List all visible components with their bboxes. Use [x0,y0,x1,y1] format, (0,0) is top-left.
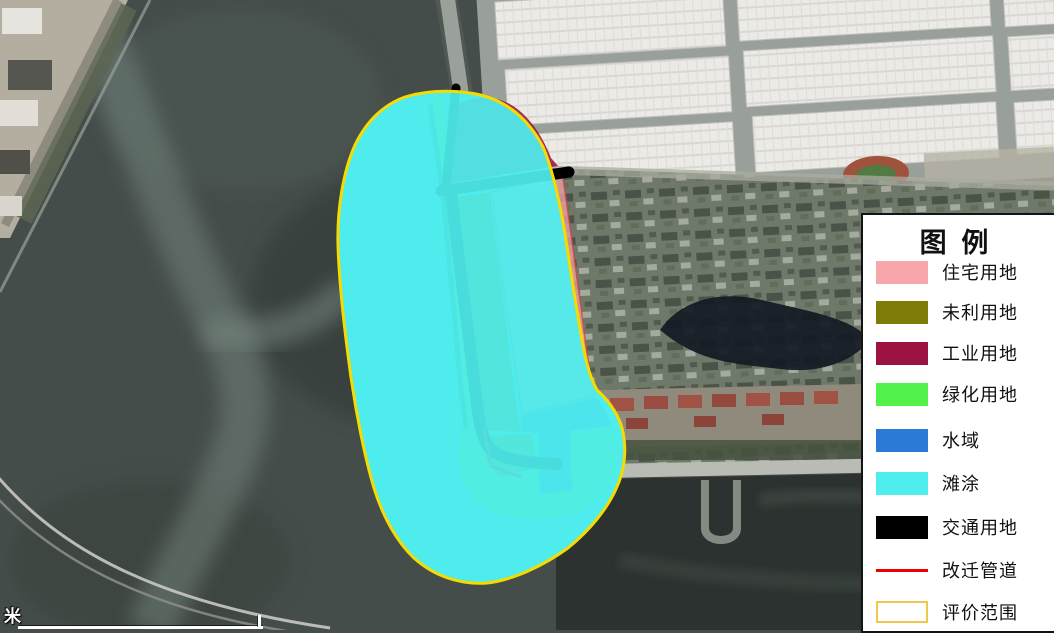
legend-item-unused: 未利用地 [876,300,1018,324]
legend-item-boundary: 评价范围 [876,600,1018,624]
legend-item-label: 改迁管道 [942,557,1018,583]
legend-item-green: 绿化用地 [876,382,1018,406]
scale-bar: 米 [0,600,280,630]
legend-swatch-boundary [876,601,928,623]
legend-title: 图 例 [863,221,1049,260]
legend-item-industrial: 工业用地 [876,341,1018,365]
scale-bar-line [18,626,263,629]
legend-item-label: 住宅用地 [942,259,1018,285]
legend-item-label: 水域 [942,427,980,453]
legend-item-pipeline: 改迁管道 [876,558,1018,582]
legend-panel: 图 例 住宅用地未利用地工业用地绿化用地水域滩涂交通用地改迁管道评价范围 [861,213,1054,633]
scale-unit-label: 米 [4,602,21,627]
legend-swatch-industrial [876,342,928,365]
legend-swatch-traffic [876,516,928,539]
legend-item-label: 绿化用地 [942,381,1018,407]
legend-item-water: 水域 [876,428,980,452]
legend-item-label: 交通用地 [942,514,1018,540]
legend-swatch-tidal [876,472,928,495]
legend-item-label: 工业用地 [942,340,1018,366]
legend-item-tidal: 滩涂 [876,471,980,495]
legend-item-label: 滩涂 [942,470,980,496]
legend-swatch-green [876,383,928,406]
region-evaluation-boundary [338,91,625,583]
legend-item-residential: 住宅用地 [876,260,1018,284]
legend-item-traffic: 交通用地 [876,515,1018,539]
legend-swatch-residential [876,261,928,284]
legend-swatch-pipeline [876,559,928,582]
legend-swatch-unused [876,301,928,324]
scale-bar-tick [258,615,261,627]
legend-item-label: 未利用地 [942,299,1018,325]
legend-item-label: 评价范围 [942,599,1018,625]
legend-swatch-water [876,429,928,452]
